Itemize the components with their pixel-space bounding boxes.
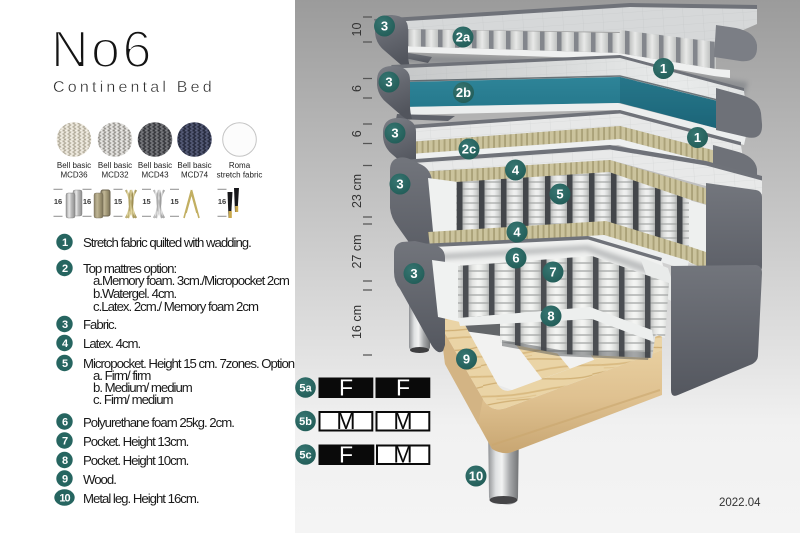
svg-text:5c: 5c <box>299 450 311 462</box>
svg-text:5b: 5b <box>299 416 312 428</box>
svg-text:3: 3 <box>396 177 403 192</box>
svg-text:2c: 2c <box>462 142 476 157</box>
svg-text:5a: 5a <box>299 383 312 395</box>
svg-text:M: M <box>393 408 412 434</box>
svg-text:3: 3 <box>410 266 417 281</box>
svg-text:3: 3 <box>381 19 388 34</box>
svg-text:27 cm: 27 cm <box>350 234 364 268</box>
svg-text:9: 9 <box>463 352 470 367</box>
svg-text:10: 10 <box>469 469 483 484</box>
svg-text:M: M <box>336 408 355 434</box>
svg-text:2022.04: 2022.04 <box>719 497 761 509</box>
svg-text:F: F <box>396 375 410 401</box>
svg-text:6: 6 <box>350 85 364 92</box>
svg-text:1: 1 <box>660 61 667 76</box>
svg-text:3: 3 <box>385 75 392 90</box>
svg-text:F: F <box>339 375 353 401</box>
svg-text:M: M <box>393 442 412 468</box>
svg-text:2a: 2a <box>456 30 471 45</box>
svg-text:7: 7 <box>549 265 556 280</box>
svg-text:6: 6 <box>512 251 519 266</box>
svg-text:8: 8 <box>547 309 554 324</box>
svg-text:10: 10 <box>350 23 364 37</box>
svg-text:F: F <box>339 442 353 468</box>
svg-text:1: 1 <box>694 130 701 145</box>
svg-text:4: 4 <box>513 225 521 240</box>
svg-text:4: 4 <box>512 163 520 178</box>
svg-text:23 cm: 23 cm <box>350 174 364 208</box>
svg-text:2b: 2b <box>456 85 471 100</box>
svg-text:5: 5 <box>556 187 563 202</box>
svg-text:3: 3 <box>391 126 398 141</box>
svg-text:6: 6 <box>350 130 364 137</box>
svg-text:16 cm: 16 cm <box>350 305 364 339</box>
